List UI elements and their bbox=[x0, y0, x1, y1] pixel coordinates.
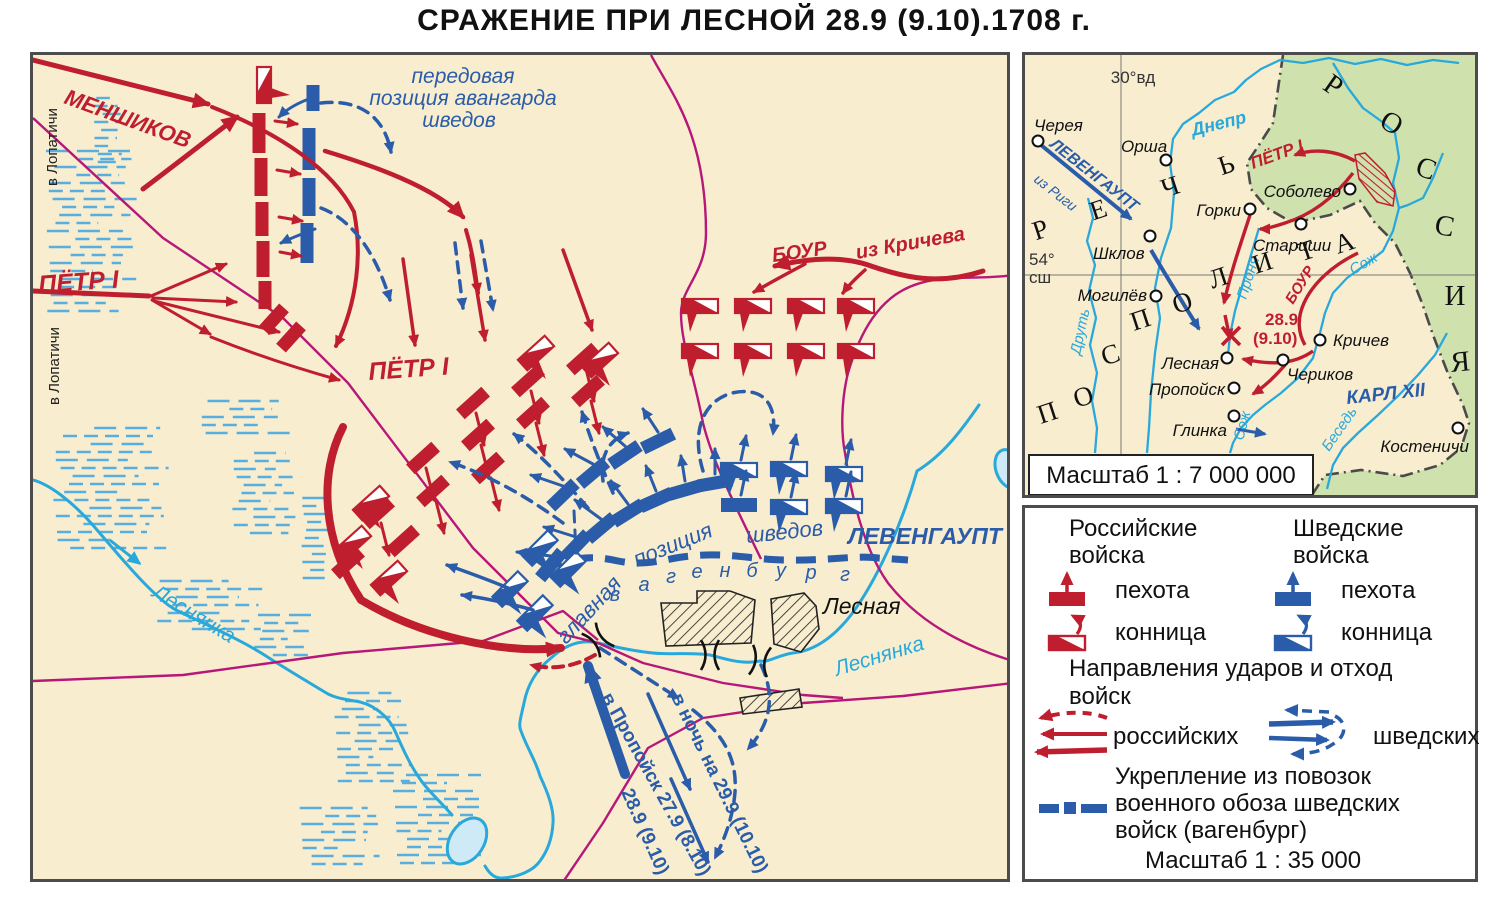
city-marker bbox=[1245, 204, 1256, 215]
legend-wagenburg-line2: военного обоза шведских bbox=[1115, 791, 1400, 818]
page-title: СРАЖЕНИЕ ПРИ ЛЕСНОЙ 28.9 (9.10).1708 г. bbox=[0, 4, 1508, 38]
wagenburg-letter: е bbox=[691, 561, 702, 583]
city-label: Могилёв bbox=[1078, 286, 1147, 305]
label-petr-center: ПЁТР I bbox=[367, 352, 450, 386]
label-peredovaya-3: шведов bbox=[422, 109, 496, 132]
city-label: Глинка bbox=[1173, 421, 1227, 440]
region-letter: Я bbox=[1449, 345, 1471, 379]
city-marker bbox=[1278, 355, 1289, 366]
label-peredovaya-2: позиция авангарда bbox=[369, 87, 556, 110]
wagenburg-letter: г bbox=[666, 566, 676, 588]
legend-cavalry-swe-icon bbox=[1267, 612, 1319, 660]
legend-arrows-rus-icon bbox=[1027, 708, 1111, 764]
region-letter: И bbox=[1445, 280, 1466, 312]
city-label: Соболево bbox=[1264, 182, 1341, 201]
inset-scale-box: Масштаб 1 : 7 000 000 bbox=[1029, 455, 1313, 495]
legend-scale-text: Масштаб 1 : 35 000 bbox=[1025, 848, 1481, 875]
legend-directions-line1: Направления ударов и отход bbox=[1069, 656, 1392, 683]
main-battle-map: МЕНШИКОВ ПЁТР I ПЁТР I БОУР из Кричева в… bbox=[30, 52, 1010, 882]
legend-arrows-rus-label: российских bbox=[1113, 724, 1238, 751]
city-marker bbox=[1315, 335, 1326, 346]
city-marker bbox=[1151, 291, 1162, 302]
label-meridian: 30°вд bbox=[1111, 68, 1156, 87]
city-marker bbox=[1453, 423, 1464, 434]
infantry-unit-rus bbox=[256, 202, 269, 236]
label-battle-date-1: 28.9 bbox=[1265, 310, 1298, 329]
legend-arrows-swe-label: шведских bbox=[1373, 724, 1479, 751]
legend-wagenburg-icon bbox=[1037, 798, 1113, 818]
infantry-unit-rus bbox=[259, 281, 272, 309]
label-v-lopatichi-bottom: в Лопатичи bbox=[46, 327, 63, 405]
infantry-unit-rus bbox=[257, 241, 270, 277]
city-marker bbox=[1296, 219, 1307, 230]
infantry-unit-rus bbox=[255, 158, 268, 196]
label-levengaupt: ЛЕВЕНГАУПТ bbox=[846, 523, 1004, 549]
legend-directions-line2: войск bbox=[1069, 684, 1131, 711]
city-marker bbox=[1145, 231, 1156, 242]
legend-wagenburg-line3: войск (вагенбург) bbox=[1115, 818, 1307, 845]
legend-rus-header: Российские войска bbox=[1069, 516, 1197, 570]
city-label: Лесная bbox=[1161, 354, 1219, 373]
city-marker bbox=[1161, 155, 1172, 166]
wagenburg-letter: н bbox=[719, 560, 730, 582]
wagenburg-letter: а bbox=[638, 574, 649, 596]
legend-infantry-swe-icon bbox=[1267, 570, 1319, 616]
city-label: Чериков bbox=[1287, 365, 1353, 384]
city-label: Костеничи bbox=[1380, 437, 1469, 456]
label-petr-left: ПЁТР I bbox=[37, 265, 120, 299]
legend-infantry-rus-icon bbox=[1041, 570, 1093, 616]
label-lesnaya-village: Лесная bbox=[821, 593, 901, 619]
city-label: Шклов bbox=[1093, 244, 1145, 263]
infantry-unit-swe bbox=[303, 178, 316, 216]
label-parallel-deg: 54° bbox=[1029, 250, 1055, 269]
label-battle-date-2: (9.10) bbox=[1253, 329, 1297, 348]
legend-arrows-swe-icon bbox=[1263, 704, 1355, 764]
legend-panel: Российские войска Шведские войска пехота… bbox=[1022, 505, 1478, 882]
inset-scale-text: Масштаб 1 : 7 000 000 bbox=[1046, 462, 1295, 489]
infantry-unit-rus bbox=[253, 113, 266, 153]
legend-cavalry-swe-label: конница bbox=[1341, 620, 1432, 647]
legend-wagenburg-line1: Укрепление из повозок bbox=[1115, 764, 1371, 791]
city-label: Кричев bbox=[1333, 331, 1389, 350]
legend-infantry-swe-label: пехота bbox=[1341, 578, 1415, 605]
city-label: Пропойск bbox=[1149, 380, 1226, 399]
city-label: Горки bbox=[1196, 201, 1241, 220]
city-marker bbox=[1345, 184, 1356, 195]
wagenburg-letter: в bbox=[610, 584, 620, 606]
legend-infantry-rus-label: пехота bbox=[1115, 578, 1189, 605]
inset-canvas: 30°вд 54° сш Днепр Друть Проня Сож Сож Б… bbox=[1025, 55, 1475, 495]
inset-overview-map: 30°вд 54° сш Днепр Друть Проня Сож Сож Б… bbox=[1022, 52, 1478, 498]
wagenburg-letter: г bbox=[840, 564, 850, 586]
infantry-unit-swe bbox=[721, 498, 757, 512]
city-marker bbox=[1033, 136, 1044, 147]
wagenburg-letter: р bbox=[804, 562, 816, 584]
city-marker bbox=[1229, 411, 1240, 422]
city-label: Черея bbox=[1034, 116, 1083, 135]
legend-cavalry-rus-label: конница bbox=[1115, 620, 1206, 647]
main-map-canvas: МЕНШИКОВ ПЁТР I ПЁТР I БОУР из Кричева в… bbox=[33, 55, 1007, 879]
label-peredovaya-1: передовая bbox=[411, 65, 514, 88]
label-v-lopatichi-top: в Лопатичи bbox=[44, 108, 61, 186]
label-parallel-dir: сш bbox=[1029, 268, 1051, 287]
wagenburg-letter: у bbox=[774, 560, 787, 582]
legend-swe-header: Шведские войска bbox=[1293, 516, 1404, 570]
city-label: Орша bbox=[1121, 137, 1167, 156]
wagenburg-letter: б bbox=[746, 560, 758, 582]
city-marker bbox=[1222, 353, 1233, 364]
city-marker bbox=[1229, 383, 1240, 394]
legend-cavalry-rus-icon bbox=[1041, 612, 1093, 660]
